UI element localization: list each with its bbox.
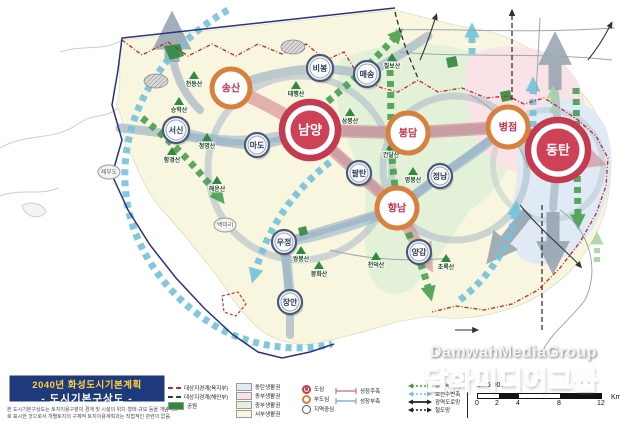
legend-label: 중부생활권 — [255, 401, 280, 409]
badge-label: 백미리 — [217, 221, 234, 229]
legend-growth-sub: 성장부축 — [335, 397, 380, 405]
rail-network-swatch — [408, 406, 432, 414]
growth-sub-swatch — [335, 397, 357, 405]
zone-swatch — [236, 392, 252, 400]
mountain-label: 해운산 — [209, 185, 226, 193]
water-axis-swatch — [408, 390, 432, 398]
map-title: 2040년 화성도시기본계획 — [8, 377, 166, 391]
legend-water-axis: 보전수변축 — [408, 390, 460, 398]
city-node-budocim: 봉담 — [388, 113, 430, 156]
scale-tick: 4 — [516, 400, 520, 407]
city-node-budocim: 향남 — [377, 188, 419, 231]
legend-boundary-coast: 대상지경계(해안부) — [168, 393, 228, 401]
city-label: 우정 — [277, 237, 292, 247]
legend-rail-network: 철도망 — [408, 406, 450, 414]
legend-growth-main: 성장주축 — [335, 387, 380, 395]
mountain-label: 삼봉산 — [342, 117, 359, 125]
legend-zone-dongtan: 동탄생활권 — [236, 383, 280, 391]
scale-unit: Km — [611, 394, 620, 401]
legend-label: 공원 — [187, 402, 197, 410]
legend-park: 공원 — [168, 402, 197, 410]
neighbor-coastline — [0, 40, 122, 217]
minor-badge: 제부도 — [98, 165, 120, 179]
legend-label: 광역도로망 — [435, 398, 460, 406]
legend-label: 동탄생활권 — [255, 383, 280, 391]
road-network-swatch — [408, 398, 432, 406]
mountain-label: 칠보산 — [384, 62, 401, 70]
zone-swatch — [236, 410, 252, 418]
city-label: 양감 — [412, 247, 427, 257]
legend-city-center: 도심 — [302, 385, 324, 393]
badge-label: 제부도 — [101, 168, 118, 176]
city-plan-map: 제부도백미리 칠보산천등산태행산승학산삼봉산무봉산청명산건달산함경산명봉산해운산… — [0, 0, 620, 372]
title-box: 2040년 화성도시기본계획 - 도시기본구상도 - — [8, 374, 166, 403]
city-label: 정남 — [433, 171, 448, 181]
scale-tick: 12 — [597, 400, 605, 407]
city-node-budocim: 병점 — [488, 107, 530, 150]
mountain-label: 초록산 — [438, 263, 455, 271]
legend-label: 보전수변축 — [435, 390, 460, 398]
legend-zone-west: 서부생활권 — [236, 410, 280, 418]
sub-center-swatch — [302, 395, 311, 404]
city-label: 팔탄 — [352, 168, 367, 178]
mountain-label: 승학산 — [171, 106, 188, 114]
legend-label: 서부생활권 — [255, 410, 280, 418]
legend-road-network: 광역도로망 — [408, 398, 460, 406]
city-label: 매송 — [360, 69, 375, 79]
legend-label: 보전녹지축 — [435, 382, 460, 390]
boundary-coast-swatch — [168, 396, 181, 398]
legend-label: 도심 — [314, 385, 324, 393]
legend-local-center: 지역중심 — [302, 405, 334, 413]
park-swatch — [168, 402, 184, 410]
legend-label: 대상지경계(육지부) — [184, 384, 228, 392]
city-label: 마도 — [250, 140, 265, 150]
scale-bar — [477, 393, 602, 399]
legend-divider — [467, 374, 468, 418]
mountain-label: 천덕산 — [368, 261, 385, 269]
legend-label: 성장부축 — [360, 397, 380, 405]
city-label: 송산 — [222, 82, 241, 95]
city-label: 장안 — [283, 297, 298, 307]
legend-label: 대상지경계(해안부) — [184, 393, 228, 401]
legend-label: 철도망 — [435, 406, 450, 414]
growth-main-swatch — [335, 387, 357, 395]
legend-label: 부도심 — [314, 395, 329, 403]
city-label: 향남 — [388, 202, 407, 215]
scale-tick: 0 — [475, 400, 479, 407]
legend-boundary-land: 대상지경계(육지부) — [168, 384, 228, 392]
zone-swatch — [236, 401, 252, 409]
legend-zone-central: 중부생활권 — [236, 401, 280, 409]
mountain-label: 천등산 — [186, 80, 203, 88]
mountain-label: 태행산 — [288, 90, 305, 98]
city-center-swatch — [302, 385, 311, 394]
disclaimer-text: 본 도시기본구상도는 토지이용구분의 경계 및 시설의 위치·형태·규모 등을 … — [7, 407, 179, 420]
mountain-label: 명봉산 — [405, 176, 422, 184]
scale-tick: 8 — [557, 400, 561, 407]
green-axis-swatch — [408, 382, 432, 390]
city-label: 남양 — [298, 123, 322, 138]
local-center-swatch — [302, 405, 311, 414]
city-label: 동탄 — [546, 143, 570, 158]
city-label: 서신 — [169, 125, 184, 135]
concept-map-page: 제부도백미리 칠보산천등산태행산승학산삼봉산무봉산청명산건달산함경산명봉산해운산… — [0, 0, 620, 427]
legend-label: 성장주축 — [360, 387, 380, 395]
city-label: 봉담 — [399, 127, 418, 140]
legend-label: 지역중심 — [314, 405, 334, 413]
legend-green-axis: 보전녹지축 — [408, 382, 460, 390]
zone-swatch — [236, 383, 252, 391]
scale-ratio: 1:75,000 — [477, 382, 504, 389]
mountain-label: 쌍봉산 — [293, 255, 310, 263]
city-node-budocim: 송산 — [212, 69, 252, 110]
scale-tick: 2 — [495, 400, 499, 407]
legend-zone-east: 동부생활권 — [236, 392, 280, 400]
map-subtitle: - 도시기본구상도 - — [8, 391, 166, 406]
mountain-label: 함경산 — [164, 156, 181, 164]
legend-band: 2040년 화성도시기본계획 - 도시기본구상도 - 본 도시기본구상도는 토지… — [0, 370, 620, 427]
minor-badge: 백미리 — [214, 218, 236, 232]
mountain-label: 청명산 — [199, 142, 216, 150]
city-node-docim: 동탄 — [528, 120, 590, 183]
city-label: 비봉 — [313, 63, 328, 73]
legend-label: 동부생활권 — [255, 392, 280, 400]
mountain-label: 봉화산 — [311, 270, 328, 278]
legend-sub-center: 부도심 — [302, 395, 329, 403]
boundary-land-swatch — [168, 387, 181, 389]
city-node-docim: 남양 — [282, 102, 340, 161]
city-label: 병점 — [499, 121, 517, 134]
